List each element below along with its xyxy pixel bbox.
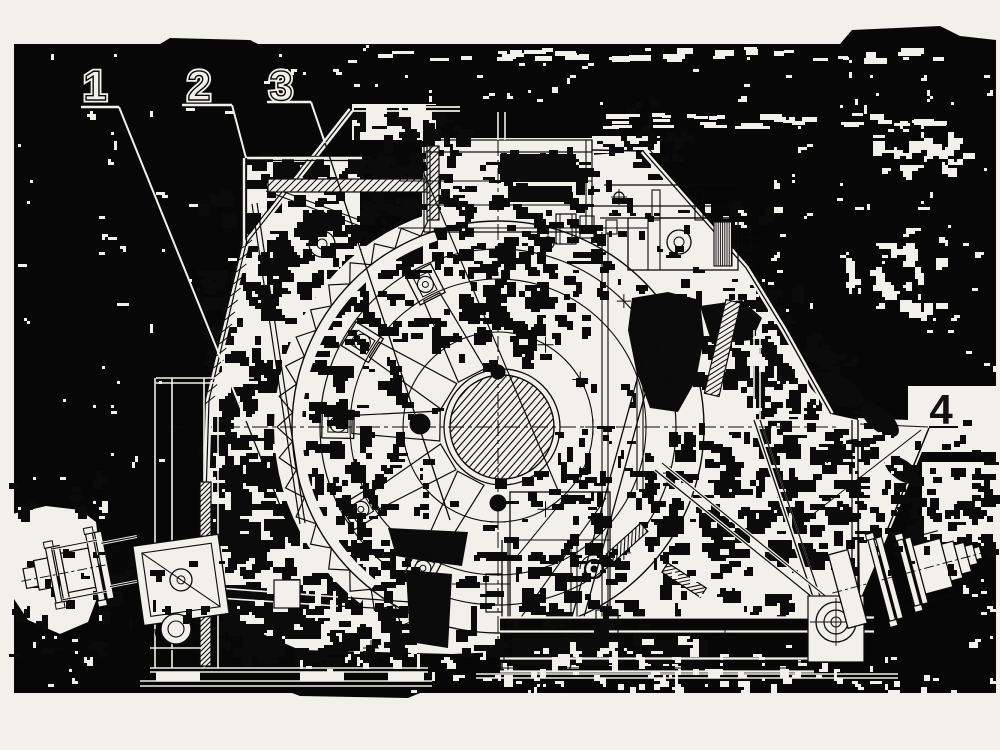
svg-text:4: 4 — [929, 386, 953, 433]
svg-text:3: 3 — [269, 62, 292, 109]
svg-text:2: 2 — [187, 62, 210, 109]
svg-text:1: 1 — [83, 62, 106, 109]
